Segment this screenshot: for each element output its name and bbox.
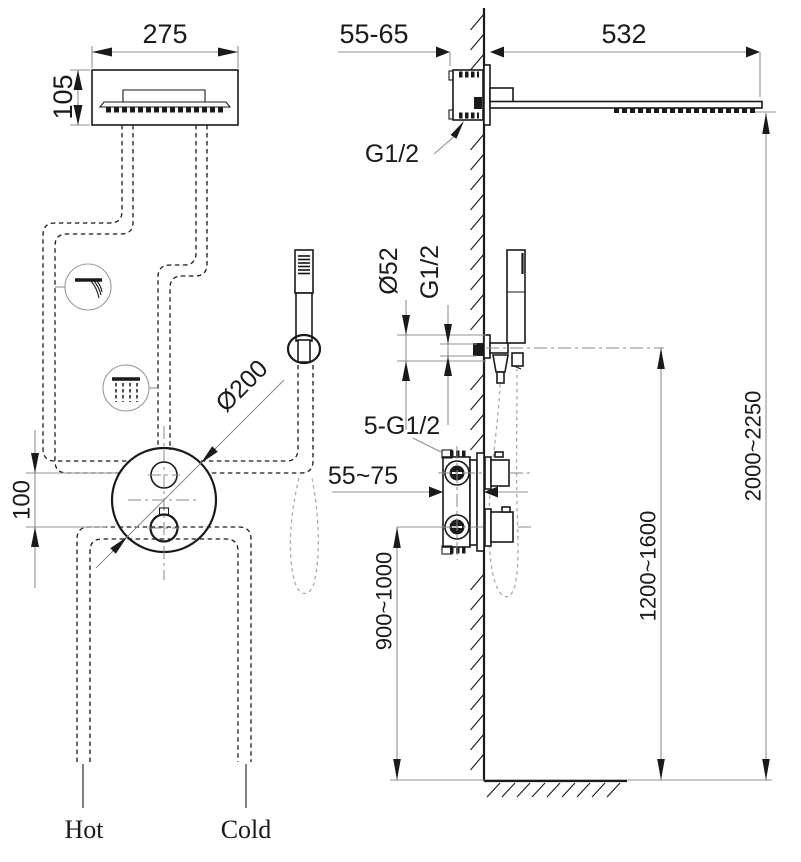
head-plate-side [490, 102, 762, 109]
valve-connections-label: 5-G1/2 [364, 412, 440, 440]
head-depth-label: 105 [48, 74, 78, 119]
dim-head-depth: 105 [48, 70, 90, 125]
technical-drawing-canvas: Ø200 275 105 100 [0, 0, 801, 862]
thermostat-plate-front [112, 426, 216, 580]
dim-arm-length: 532 [490, 19, 760, 97]
wall-hatching [471, 14, 485, 770]
valve-height-label: 900~1000 [372, 552, 397, 651]
dim-port-offset: 100 [9, 430, 119, 588]
hand-shower-front [288, 250, 320, 363]
wall-section [390, 8, 772, 797]
waterfall-mode-icon [65, 264, 111, 310]
hot-supply-label: Hot [65, 815, 105, 844]
hand-shower-side [473, 250, 525, 383]
concealed-pipes [43, 125, 313, 762]
shower-arm-side [449, 65, 762, 125]
dim-head-height: 2000~2250 [741, 112, 777, 780]
front-view: Ø200 275 105 100 [9, 19, 321, 844]
dim-valve-height: 900~1000 [372, 527, 447, 780]
side-view: G1/2 55-65 532 [328, 8, 776, 797]
supply-labels: Hot Cold [65, 764, 272, 844]
holder-height-label: 1200~1600 [636, 511, 661, 622]
valve-depth-label: 55~75 [328, 462, 398, 490]
callout-valve-connections: 5-G1/2 [364, 412, 441, 452]
lower-handle [485, 509, 491, 546]
cold-supply-label: Cold [221, 815, 272, 844]
rain-head-front [92, 70, 238, 125]
port-offset-label: 100 [9, 480, 36, 520]
plate-diameter-label: Ø200 [210, 354, 273, 417]
hand-shower-hose-loop [290, 478, 318, 594]
wall-depth-label: 55-65 [339, 19, 408, 49]
dim-head-width: 275 [92, 19, 238, 68]
arm-length-label: 532 [601, 19, 646, 49]
dim-wall-depth: 55-65 [338, 19, 450, 66]
callout-arm-thread: G1/2 [365, 121, 464, 168]
upper-handle [485, 457, 491, 489]
head-width-label: 275 [142, 19, 187, 49]
head-height-label: 2000~2250 [741, 391, 766, 502]
arm-thread-label: G1/2 [365, 140, 419, 168]
shower-installation-diagram: Ø200 275 105 100 [0, 0, 801, 862]
floor-hatching [487, 783, 620, 797]
dim-holder-height: 1200~1600 [636, 348, 665, 780]
holder-diameter-label: Ø52 [375, 247, 403, 294]
holder-thread-label: G1/2 [416, 245, 444, 299]
rain-mode-icon [103, 365, 149, 411]
